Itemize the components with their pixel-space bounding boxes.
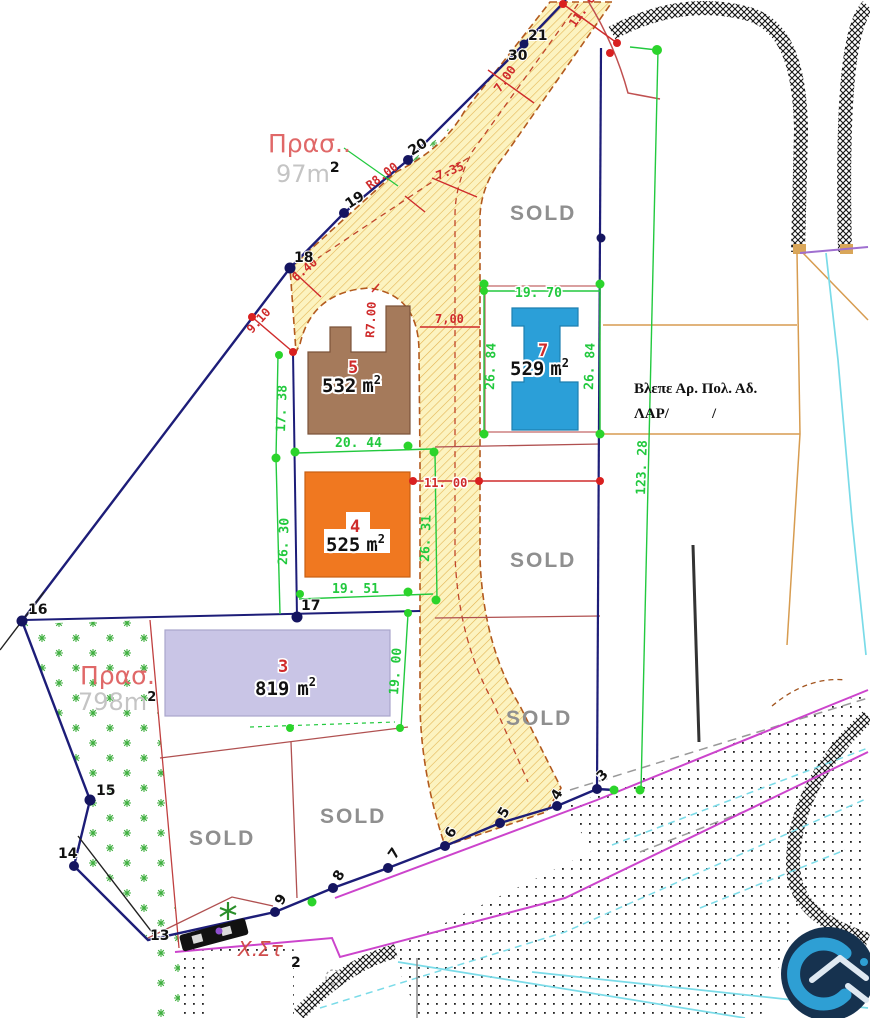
plot3-area: 819m2 — [255, 675, 316, 700]
parcel-line-tan — [802, 252, 868, 320]
point-label-18: 18 — [294, 250, 313, 266]
dim-26-84-left: 26. 84 — [483, 343, 500, 391]
sold-label-4: SOLD — [320, 805, 386, 828]
point-label-17: 17 — [301, 598, 320, 614]
point-label-8: 8 — [330, 867, 349, 884]
dim-19-70: 19. 70 — [515, 286, 562, 301]
parcel-line-tan — [797, 253, 800, 434]
parcel-line-maroon — [291, 742, 297, 898]
green-area-left-label: Πρασ. — [80, 661, 155, 690]
pavement-band-top-right — [844, 6, 868, 252]
pavement-band-top-left — [612, 8, 801, 252]
site-plan-canvas: Πρασ.. 97m2 Πρασ. 798m2 5 532m2 7 529m2 … — [0, 0, 870, 1018]
plot3-number: 3 — [278, 657, 288, 677]
station-purple-dot — [216, 928, 223, 935]
building-plot5 — [308, 306, 410, 434]
dim-19-00: 19. 00 — [387, 647, 405, 695]
cyan-line-right — [826, 253, 866, 655]
logo-dot — [860, 958, 868, 966]
dim-26-31: 26. 31 — [418, 515, 435, 563]
permit-note-line1: Βλεπε Αρ. Πολ. Αδ. — [634, 381, 758, 397]
parcel-line-tan — [787, 434, 800, 645]
green-area-top-size: 97m2 — [276, 160, 340, 188]
point-label-16: 16 — [28, 602, 47, 618]
dim-17-38: 17. 38 — [274, 385, 291, 433]
sold-label-2: SOLD — [510, 549, 576, 572]
plot5-area: 532m2 — [322, 373, 381, 397]
stipple-white-pocket — [205, 958, 293, 1018]
point-label-15: 15 — [96, 783, 115, 799]
dim-20-44: 20. 44 — [335, 436, 382, 451]
dim-11-00-mid: 11. 00 — [424, 476, 467, 490]
parcel-north-line — [24, 611, 420, 620]
dim-26-30: 26. 30 — [276, 518, 293, 566]
sold-label-1: SOLD — [510, 202, 576, 225]
green-area-left-size: 798m2 — [78, 688, 156, 716]
brown-dashed-curve — [772, 680, 846, 706]
point-label-13: 13 — [150, 928, 169, 944]
dim-r7-00: R7.00 — [363, 301, 379, 338]
cadastral-drawing: Πρασ.. 97m2 Πρασ. 798m2 5 532m2 7 529m2 … — [0, 0, 870, 1018]
plot7-area: 529m2 — [510, 356, 569, 380]
parcel-line-maroon — [160, 727, 408, 758]
plot3-bottom-dashed — [250, 722, 395, 727]
plant-symbol — [220, 902, 236, 920]
point-label-21: 21 — [528, 28, 547, 44]
parcel-west-line — [293, 352, 297, 617]
dim-7-00-mid: 7,00 — [435, 312, 464, 326]
station-label: Χ.Στ — [237, 937, 284, 961]
point-label-7: 7 — [385, 845, 404, 862]
point-label-14: 14 — [58, 846, 78, 862]
permit-note-line2: ΛΑΡ/ — [634, 406, 670, 422]
dim-123-28: 123. 28 — [634, 440, 651, 495]
point-label-30: 30 — [508, 48, 528, 64]
permit-note-line2-end: / — [711, 406, 717, 422]
dim-19-51: 19. 51 — [332, 582, 379, 597]
sold-label-5: SOLD — [189, 827, 255, 850]
sold-label-3: SOLD — [506, 707, 572, 730]
purple-line-top-right — [800, 247, 868, 253]
green-area-top-label: Πρασ.. — [268, 129, 351, 158]
dim-26-84-right: 26. 84 — [582, 343, 599, 391]
plot4-area: 525m2 — [326, 532, 385, 556]
utility-line-black — [693, 545, 699, 742]
pavement-band-bottom-center — [299, 951, 396, 1014]
station-point-label: 2 — [291, 955, 301, 971]
brand-logo — [781, 927, 870, 1018]
